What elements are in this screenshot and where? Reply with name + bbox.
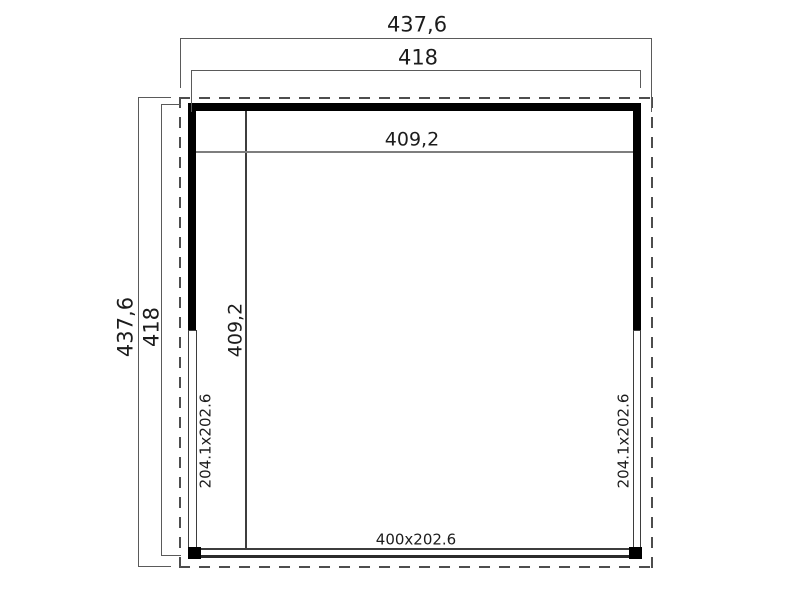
dim-outer-height-tick-bottom (138, 566, 171, 567)
dim-wall-height-tick-top (161, 104, 181, 105)
label-outer-width: 437,6 (387, 15, 447, 36)
dim-wall-width-line (191, 70, 641, 71)
roof-outline-bottom (179, 566, 653, 568)
opening-left-wall (188, 330, 197, 548)
label-left-opening-size: 204.1x202.6 (199, 394, 214, 489)
label-inner-width: 409,2 (385, 131, 439, 150)
label-inner-height: 409,2 (227, 303, 246, 357)
floor-plan-drawing: 437,6 418 409,2 437,6 418 409,2 204.1x20… (0, 0, 800, 600)
wall-top (188, 103, 641, 111)
label-wall-height: 418 (142, 307, 163, 347)
corner-post-right (629, 547, 642, 559)
opening-front-line-inner (201, 555, 629, 558)
interior-line-horizontal (196, 151, 633, 153)
label-outer-height: 437,6 (116, 297, 137, 357)
label-right-opening-size: 204.1x202.6 (617, 394, 632, 489)
dim-wall-width-tick-left (191, 70, 192, 112)
dim-wall-height-tick-bottom (161, 555, 181, 556)
roof-outline-left (179, 97, 181, 568)
dim-outer-width-tick-right (651, 38, 652, 112)
roof-outline-top (179, 97, 653, 99)
label-wall-width: 418 (398, 48, 438, 69)
dim-outer-height-tick-top (138, 97, 171, 98)
dim-outer-width-tick-left (180, 38, 181, 88)
label-front-opening-size: 400x202.6 (376, 533, 456, 548)
opening-right-wall (633, 330, 642, 548)
roof-outline-right (651, 97, 653, 568)
dim-outer-width-line (180, 38, 652, 39)
dim-wall-width-tick-right (640, 70, 641, 88)
wall-right-upper (633, 103, 641, 331)
corner-post-left (188, 547, 201, 559)
wall-left-upper (188, 103, 196, 331)
